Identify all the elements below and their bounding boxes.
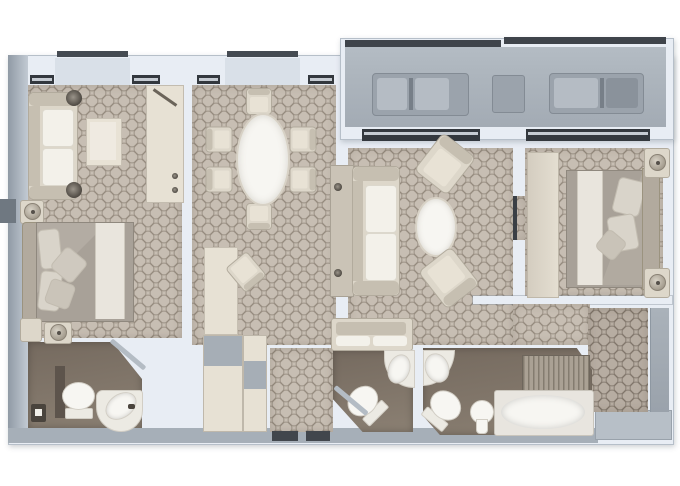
window-bay	[225, 58, 300, 85]
ottoman-table	[86, 118, 122, 166]
bed	[566, 170, 644, 288]
lounger-backrest	[606, 78, 638, 108]
console-lamp	[334, 269, 342, 277]
window-frame	[57, 51, 128, 57]
table-lamp	[24, 203, 41, 220]
wardrobe	[146, 85, 184, 203]
console-lamp	[334, 183, 342, 191]
slatted-bench	[522, 355, 590, 394]
sofa	[352, 166, 400, 296]
sun-lounger	[549, 73, 644, 114]
dining-chair	[290, 167, 317, 193]
closet-shelf	[244, 361, 266, 389]
sofa-cushion	[365, 233, 397, 281]
lounger-seam	[600, 78, 604, 108]
window-bay	[55, 58, 130, 85]
sofa-armrest	[353, 281, 399, 295]
dressing-area-floor	[588, 308, 648, 412]
window-sill	[308, 75, 334, 84]
closet-column	[203, 335, 243, 432]
bedroom-door-leaf	[513, 196, 517, 240]
window-sill	[197, 75, 220, 84]
bathtub-frame	[494, 390, 594, 436]
wall-pillar	[0, 199, 16, 223]
sun-lounger	[372, 73, 469, 116]
window-sill	[132, 75, 160, 84]
lounger-cushion	[554, 78, 598, 108]
sofa-cushion	[42, 148, 74, 186]
table-lamp	[50, 324, 67, 341]
hallway-floor	[513, 304, 590, 345]
bathtub	[501, 395, 585, 429]
sofa-console	[330, 165, 354, 297]
window-sill	[30, 75, 54, 84]
bidet-base	[476, 419, 488, 434]
closet-shelf	[204, 336, 242, 366]
settee-cushion	[336, 336, 370, 346]
bed-runner	[577, 171, 603, 285]
settee-cushion	[373, 336, 407, 346]
wardrobe-rod	[153, 88, 178, 107]
closet-column	[243, 335, 267, 432]
settee	[331, 318, 413, 351]
sofa-side-knob	[66, 90, 82, 106]
dining-chair	[246, 203, 272, 230]
faucet	[128, 404, 135, 409]
lounger-cushion	[377, 78, 407, 110]
entry-door-mat	[272, 431, 298, 441]
writing-desk	[204, 247, 238, 335]
sofa-back	[353, 181, 363, 281]
sofa-back	[29, 106, 40, 186]
sliding-door-sill	[362, 129, 480, 141]
dining-chair	[206, 127, 233, 153]
dresser	[527, 152, 559, 298]
wardrobe-knob	[172, 187, 178, 193]
bed-runner	[95, 223, 125, 319]
bed	[36, 222, 134, 322]
shower-floor	[650, 308, 669, 412]
dining-chair	[290, 127, 317, 153]
settee-seat	[336, 322, 406, 335]
sliding-door-sill	[526, 129, 650, 141]
dining-chair	[246, 88, 272, 115]
sofa-side-knob	[66, 182, 82, 198]
window-frame	[227, 51, 298, 57]
toilet	[61, 383, 95, 419]
floor-plan	[0, 0, 680, 486]
entry-hall-floor	[270, 348, 333, 432]
dining-table	[236, 113, 290, 206]
sofa-armrest	[353, 167, 399, 181]
entry-door-mat	[306, 431, 330, 441]
balcony-side-table	[492, 75, 525, 113]
wardrobe-knob	[172, 173, 178, 179]
toilet-brush-bin	[31, 404, 46, 422]
bin-lid	[35, 409, 42, 416]
balcony-railing	[504, 37, 666, 44]
balcony-railing	[345, 40, 501, 47]
ottoman-top	[90, 122, 116, 160]
dining-chair	[206, 167, 233, 193]
table-lamp	[649, 274, 666, 291]
sofa-cushion	[365, 185, 397, 233]
lounger-cushion	[415, 78, 449, 110]
nightstand	[20, 318, 42, 342]
terrace-step	[595, 410, 672, 440]
lounger-seam	[409, 78, 413, 110]
hallway-wall	[473, 296, 672, 304]
sofa-cushion	[42, 109, 74, 147]
table-lamp	[649, 154, 666, 171]
